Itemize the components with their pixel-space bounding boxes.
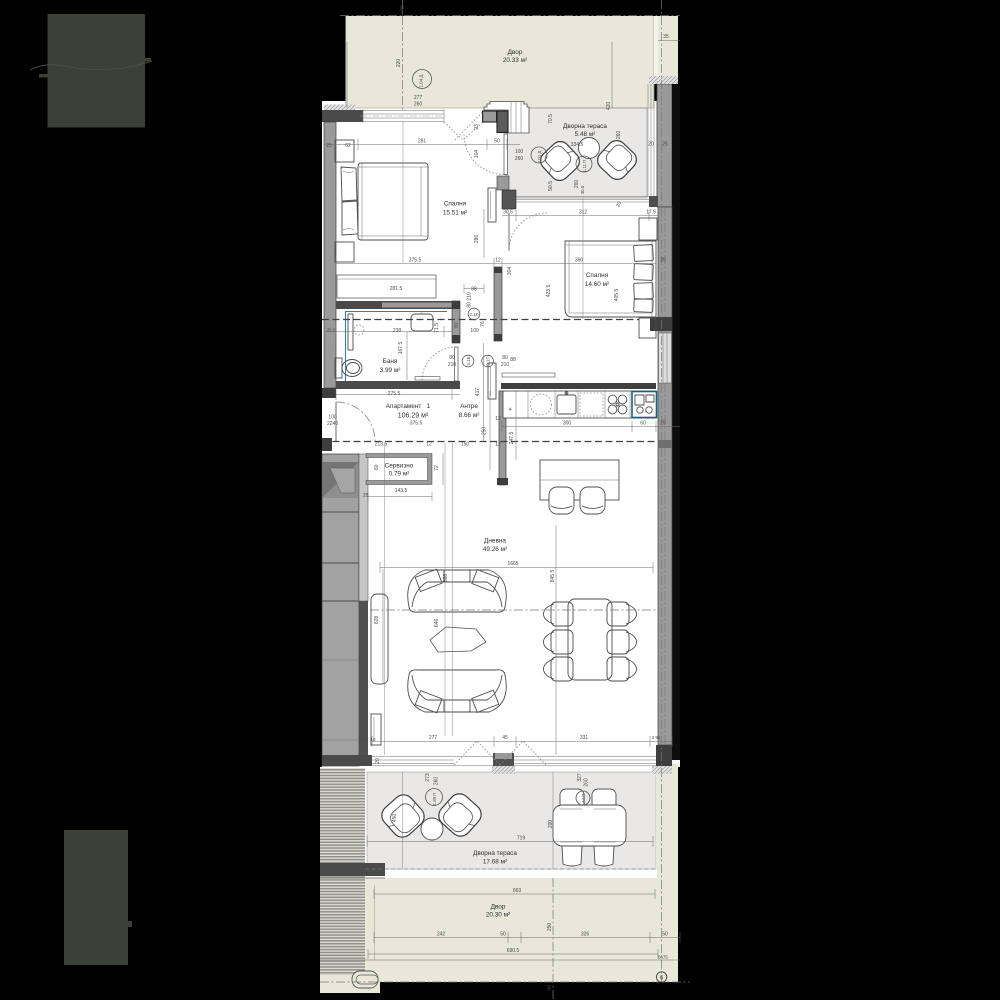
svg-text:106.29 м²: 106.29 м² — [398, 413, 429, 420]
svg-text:238: 238 — [393, 328, 402, 334]
svg-text:20: 20 — [452, 381, 458, 387]
svg-text:312: 312 — [579, 210, 588, 216]
svg-text:423.5: 423.5 — [546, 285, 552, 298]
svg-text:✳: ✳ — [508, 407, 512, 413]
svg-text:Двор: Двор — [491, 904, 506, 911]
svg-text:88: 88 — [471, 287, 477, 293]
svg-text:80 210: 80 210 — [467, 292, 473, 308]
svg-text:25: 25 — [660, 421, 666, 427]
svg-text:10: 10 — [371, 737, 376, 742]
svg-text:Спалня: Спалня — [586, 272, 609, 279]
svg-text:100: 100 — [328, 415, 337, 421]
svg-text:80: 80 — [449, 355, 455, 361]
svg-text:273: 273 — [425, 773, 431, 782]
svg-text:275.5: 275.5 — [388, 391, 401, 397]
svg-text:12: 12 — [426, 442, 432, 448]
svg-text:5675: 5675 — [658, 955, 668, 960]
svg-text:17.5: 17.5 — [646, 210, 656, 216]
svg-text:87: 87 — [454, 322, 460, 328]
svg-text:50.5: 50.5 — [548, 181, 554, 191]
svg-text:3.1Б: 3.1Б — [466, 356, 471, 365]
svg-text:50: 50 — [662, 932, 668, 938]
svg-text:277: 277 — [414, 95, 423, 101]
svg-text:25: 25 — [363, 737, 368, 742]
svg-text:2.1П: 2.1П — [486, 356, 491, 365]
svg-text:2.01 Д: 2.01 Д — [537, 151, 542, 164]
svg-text:286: 286 — [474, 235, 480, 244]
svg-text:60: 60 — [374, 464, 380, 470]
svg-text:360: 360 — [575, 258, 584, 264]
svg-text:331: 331 — [580, 735, 589, 741]
svg-text:845.5: 845.5 — [550, 570, 556, 583]
svg-text:290: 290 — [548, 820, 554, 829]
svg-text:25: 25 — [660, 258, 666, 264]
svg-text:242: 242 — [437, 932, 446, 938]
svg-text:40: 40 — [547, 985, 553, 991]
svg-text:40: 40 — [400, 5, 406, 11]
svg-text:2240: 2240 — [327, 421, 338, 427]
svg-text:70.5: 70.5 — [548, 114, 554, 124]
svg-text:Антре: Антре — [460, 403, 478, 410]
svg-text:50: 50 — [494, 139, 500, 145]
svg-text:375.5: 375.5 — [410, 421, 423, 427]
svg-text:104: 104 — [474, 150, 480, 159]
svg-text:220: 220 — [396, 59, 402, 68]
svg-text:646: 646 — [434, 619, 440, 628]
svg-text:49.26 м²: 49.26 м² — [483, 546, 507, 553]
svg-text:17.68 м²: 17.68 м² — [483, 859, 507, 866]
svg-text:277: 277 — [429, 735, 438, 741]
svg-text:12: 12 — [495, 442, 501, 448]
svg-text:25.5: 25.5 — [327, 328, 336, 333]
svg-text:Двор: Двор — [508, 49, 523, 56]
svg-text:35: 35 — [663, 34, 669, 40]
svg-text:Дневна: Дневна — [484, 538, 506, 545]
svg-text:1.89 П: 1.89 П — [432, 793, 437, 806]
svg-text:60: 60 — [640, 421, 646, 427]
svg-text:375.5: 375.5 — [409, 258, 422, 264]
svg-text:5.48 м²: 5.48 м² — [575, 131, 596, 138]
svg-text:50: 50 — [500, 932, 506, 938]
svg-text:210: 210 — [501, 362, 510, 368]
svg-text:80: 80 — [502, 355, 508, 361]
svg-text:260: 260 — [616, 131, 622, 140]
svg-text:260: 260 — [584, 778, 590, 787]
svg-text:213.5: 213.5 — [375, 442, 388, 448]
svg-text:100: 100 — [515, 149, 524, 155]
svg-text:30.5: 30.5 — [580, 185, 585, 194]
svg-text:20.30 м²: 20.30 м² — [486, 912, 510, 919]
svg-text:1.04 Д: 1.04 Д — [419, 75, 424, 88]
svg-text:663: 663 — [513, 888, 522, 894]
svg-text:Сервизно: Сервизно — [385, 463, 414, 470]
svg-text:100: 100 — [470, 328, 479, 334]
svg-text:405.5: 405.5 — [614, 289, 620, 302]
svg-text:72: 72 — [434, 465, 440, 471]
svg-text:12: 12 — [495, 416, 501, 422]
svg-text:23: 23 — [474, 124, 480, 130]
svg-text:304: 304 — [507, 267, 513, 276]
svg-text:690.5: 690.5 — [507, 948, 520, 954]
svg-text:167.5: 167.5 — [398, 342, 404, 355]
svg-text:247.5: 247.5 — [509, 432, 515, 445]
svg-text:3.99 м²: 3.99 м² — [380, 367, 401, 374]
svg-text:20: 20 — [375, 758, 381, 764]
svg-text:260: 260 — [515, 156, 524, 162]
svg-text:Спалня: Спалня — [444, 201, 467, 208]
svg-text:300: 300 — [563, 421, 572, 427]
svg-text:30.5: 30.5 — [503, 210, 513, 216]
svg-text:260: 260 — [434, 777, 440, 786]
svg-text:1.44 П: 1.44 П — [581, 794, 586, 807]
svg-text:14.60 м²: 14.60 м² — [585, 281, 609, 288]
svg-text:71.5: 71.5 — [434, 323, 440, 333]
svg-text:Дворна тераса: Дворна тераса — [473, 850, 517, 857]
svg-text:281.5: 281.5 — [390, 286, 403, 292]
svg-text:417: 417 — [475, 388, 481, 397]
svg-text:868: 868 — [443, 574, 449, 583]
svg-text:420: 420 — [606, 102, 612, 111]
svg-text:62: 62 — [345, 143, 351, 149]
svg-text:2 95: 2 95 — [652, 735, 661, 740]
svg-text:150: 150 — [461, 442, 470, 448]
svg-text:327: 327 — [577, 773, 583, 782]
svg-text:25: 25 — [326, 143, 332, 149]
svg-text:719: 719 — [517, 836, 526, 842]
svg-text:326: 326 — [581, 932, 590, 938]
svg-text:20: 20 — [648, 142, 654, 148]
svg-text:250: 250 — [482, 427, 488, 436]
svg-text:20.33 м²: 20.33 м² — [503, 57, 527, 64]
svg-text:250: 250 — [547, 923, 553, 932]
svg-text:2.1Л: 2.1Л — [470, 312, 479, 317]
svg-text:1.11 П: 1.11 П — [582, 160, 587, 173]
svg-text:15.51 м²: 15.51 м² — [443, 210, 467, 217]
svg-text:25: 25 — [363, 493, 369, 499]
svg-text:210: 210 — [448, 362, 457, 368]
svg-text:25: 25 — [662, 142, 668, 148]
svg-text:8.66 м²: 8.66 м² — [459, 412, 480, 419]
svg-text:281: 281 — [418, 139, 427, 145]
svg-text:45: 45 — [502, 735, 508, 741]
svg-text:Баня: Баня — [383, 358, 398, 365]
svg-text:143.5: 143.5 — [395, 488, 408, 494]
svg-text:1665: 1665 — [507, 561, 518, 567]
svg-text:628: 628 — [374, 616, 380, 625]
svg-text:Апартамент 1: Апартамент 1 — [386, 403, 431, 410]
svg-text:334.5: 334.5 — [571, 142, 584, 148]
svg-text:76: 76 — [480, 321, 486, 327]
svg-text:12: 12 — [495, 258, 501, 264]
svg-text:0.79 м²: 0.79 м² — [389, 471, 410, 478]
svg-text:88: 88 — [510, 357, 516, 363]
svg-text:Дворна тераса: Дворна тераса — [563, 123, 607, 130]
svg-text:260: 260 — [414, 102, 423, 108]
svg-text:450: 450 — [392, 814, 398, 823]
